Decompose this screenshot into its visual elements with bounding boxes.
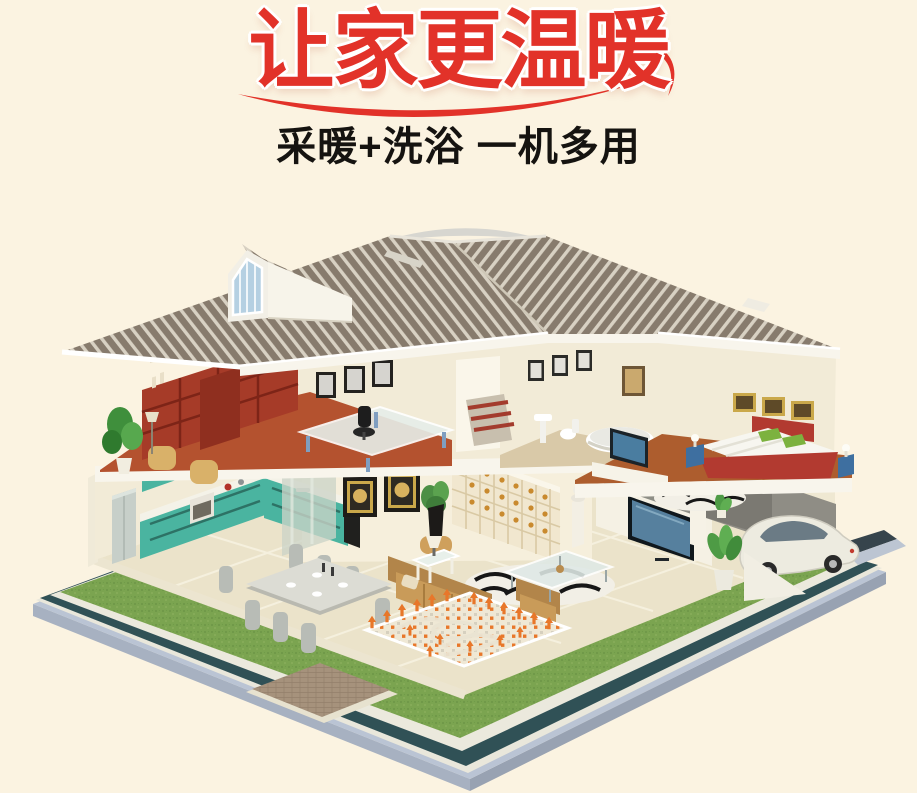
roof-vent <box>742 298 770 312</box>
staircase <box>466 394 514 446</box>
cooking-pot <box>225 484 232 491</box>
header: 让家更温暖 采暖+洗浴 一机多用 <box>0 0 917 172</box>
poster-page: 让家更温暖 采暖+洗浴 一机多用 <box>0 0 917 793</box>
taillight <box>850 549 854 553</box>
poster-subtitle: 采暖+洗浴 一机多用 <box>0 114 917 172</box>
poster-title: 让家更温暖 <box>0 6 917 96</box>
